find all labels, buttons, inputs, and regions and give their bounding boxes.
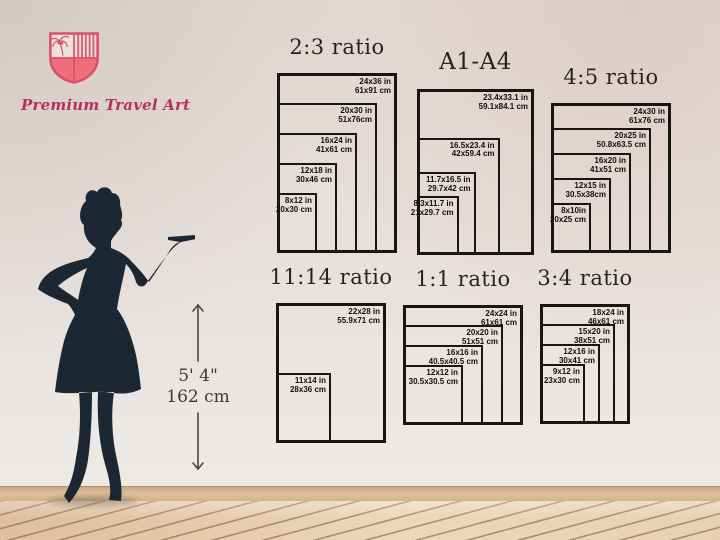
arrow-up-icon (190, 303, 206, 363)
size-label-cm: 61x91 cm (355, 87, 391, 96)
size-label-cm: 50.8x63.5 cm (597, 141, 646, 150)
size-label-cm: 55.9x71 cm (337, 317, 380, 326)
size-label: 20x25 in50.8x63.5 cm (597, 132, 646, 149)
size-label: 12x12 in30.5x30.5 cm (409, 369, 458, 386)
size-label-cm: 51x76cm (338, 116, 372, 125)
size-label: 8x12 in20x30 cm (276, 197, 312, 214)
size-rect: 11x14 in28x36 cm (276, 373, 331, 443)
size-rect: 8x10in20x25 cm (551, 203, 591, 253)
size-label: 12x16 in30x41 cm (559, 348, 595, 365)
size-rect: 8.3x11.7 in21x29.7 cm (417, 196, 459, 255)
size-label-cm: 21x29.7 cm (411, 209, 454, 218)
size-label: 23.4x33.1 in59.1x84.1 cm (479, 94, 528, 111)
size-label: 24x30 in61x76 cm (629, 108, 665, 125)
size-label-cm: 20x30 cm (276, 206, 312, 215)
size-guide-poster: Premium Travel Art 5' 4" 162 cm 2:3 rati… (0, 0, 720, 540)
height-imperial: 5' 4" (178, 366, 218, 387)
arrow-down-icon (190, 411, 206, 471)
size-label: 24x36 in61x91 cm (355, 78, 391, 95)
diagram-11-14-ratio: 11:14 ratio 22x28 in55.9x71 cm11x14 in28… (276, 303, 386, 443)
size-label: 16x16 in40.5x40.5 cm (429, 349, 478, 366)
diagram-title: 1:1 ratio (415, 267, 510, 291)
size-boxes: 24x36 in61x91 cm20x30 in51x76cm16x24 in4… (277, 73, 397, 253)
size-boxes: 24x24 in61x61 cm20x20 in51x51 cm16x16 in… (403, 305, 523, 425)
diagram-title: 3:4 ratio (537, 266, 632, 290)
size-label-cm: 41x61 cm (316, 146, 352, 155)
size-label-cm: 42x59.4 cm (450, 150, 495, 159)
diagram-2-3-ratio: 2:3 ratio 24x36 in61x91 cm20x30 in51x76c… (277, 73, 397, 253)
height-marker: 5' 4" 162 cm (166, 300, 230, 474)
size-label: 20x20 in51x51 cm (462, 329, 498, 346)
size-label: 22x28 in55.9x71 cm (337, 308, 380, 325)
brand-shield-icon (47, 30, 101, 86)
diagram-title: 11:14 ratio (269, 265, 392, 289)
size-boxes: 24x30 in61x76 cm20x25 in50.8x63.5 cm16x2… (551, 103, 671, 253)
size-boxes: 22x28 in55.9x71 cm11x14 in28x36 cm (276, 303, 386, 443)
size-label-cm: 30x46 cm (296, 176, 332, 185)
size-label-cm: 28x36 cm (290, 386, 326, 395)
diagram-4-5-ratio: 4:5 ratio 24x30 in61x76 cm20x25 in50.8x6… (551, 103, 671, 253)
size-label-cm: 29.7x42 cm (426, 185, 470, 194)
size-label-cm: 30.5x30.5 cm (409, 378, 458, 387)
diagram-title: A1-A4 (439, 49, 512, 75)
diagram-title: 4:5 ratio (563, 65, 658, 89)
size-label: 16.5x23.4 in42x59.4 cm (450, 142, 495, 159)
size-label-cm: 23x30 cm (544, 377, 580, 386)
size-label-cm: 61x76 cm (629, 117, 665, 126)
size-label: 11x14 in28x36 cm (290, 377, 326, 394)
size-label: 8.3x11.7 in21x29.7 cm (411, 200, 454, 217)
size-label: 20x30 in51x76cm (338, 107, 372, 124)
size-boxes: 18x24 in46x61 cm15x20 in38x51 cm12x16 in… (540, 304, 630, 424)
size-label-cm: 41x51 cm (590, 166, 626, 175)
size-label: 12x18 in30x46 cm (296, 167, 332, 184)
diagram-title: 2:3 ratio (289, 35, 384, 59)
size-label: 16x24 in41x61 cm (316, 137, 352, 154)
wood-floor (0, 501, 720, 540)
size-label: 8x10in20x25 cm (550, 207, 586, 224)
size-label: 12x15 in30.5x38cm (566, 182, 606, 199)
size-label: 16x20 in41x51 cm (590, 157, 626, 174)
size-label-cm: 20x25 cm (550, 216, 586, 225)
size-rect: 8x12 in20x30 cm (277, 193, 317, 253)
height-metric: 162 cm (166, 387, 230, 408)
size-rect: 12x12 in30.5x30.5 cm (403, 365, 463, 425)
diagram-a1-a4: A1-A4 23.4x33.1 in59.1x84.1 cm16.5x23.4 … (417, 89, 534, 255)
size-label: 15x20 in38x51 cm (574, 328, 610, 345)
size-label-cm: 59.1x84.1 cm (479, 103, 528, 112)
size-label: 11.7x16.5 in29.7x42 cm (426, 176, 470, 193)
size-label-cm: 30.5x38cm (566, 191, 606, 200)
diagram-3-4-ratio: 3:4 ratio 18x24 in46x61 cm15x20 in38x51 … (540, 304, 630, 424)
size-boxes: 23.4x33.1 in59.1x84.1 cm16.5x23.4 in42x5… (417, 89, 534, 255)
diagram-1-1-ratio: 1:1 ratio 24x24 in61x61 cm20x20 in51x51 … (403, 305, 523, 425)
brand-name: Premium Travel Art (21, 96, 181, 114)
size-rect: 9x12 in23x30 cm (540, 364, 585, 424)
size-label: 9x12 in23x30 cm (544, 368, 580, 385)
